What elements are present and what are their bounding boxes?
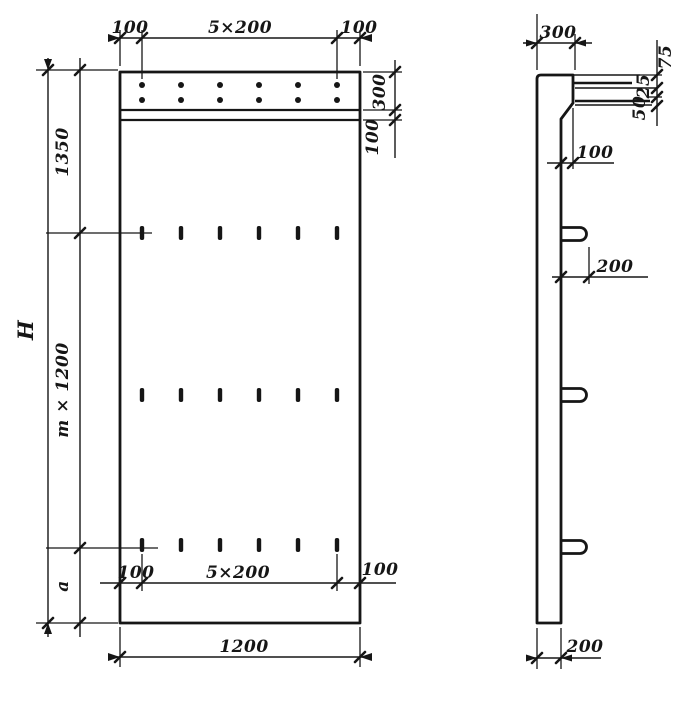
slot-mark [179,538,183,552]
dim-label-band-height: 300 [370,74,390,111]
rebar-dot [334,82,340,88]
slot-mark [179,226,183,240]
lifting-hook [561,541,587,554]
rebar-dots [139,82,340,103]
slot-mark [296,226,300,240]
dim-label-width: 1200 [219,637,268,657]
rebar-dot [139,82,145,88]
slot-mark [179,388,183,402]
dim-label-chain-75: 75 [656,45,676,70]
slot-mark [296,388,300,402]
dim-label-height: H [13,319,38,341]
slot-mark [257,538,261,552]
dim-label-hook: 200 [596,257,634,277]
rebar-dot [178,82,184,88]
slot-mark [218,226,222,240]
rebar-dot [217,97,223,103]
slot-marks [140,226,339,552]
dimension-labels: 100 5×200 100 300 100 1350 m × 1200 a H … [13,18,676,657]
slot-mark [218,538,222,552]
rebar-dot [295,82,301,88]
rebar-dot [217,82,223,88]
dim-label-top-span: 5×200 [208,18,272,38]
front-view [120,72,360,623]
slot-mark [296,538,300,552]
dim-label-top-right: 100 [341,18,378,38]
dim-label-bottom-left: 100 [118,563,155,583]
dim-label-left-middle: m × 1200 [53,342,73,437]
dim-label-left-bottom: a [53,580,73,592]
drawing-sheet: 100 5×200 100 300 100 1350 m × 1200 a H … [0,0,700,700]
slot-mark [140,538,144,552]
dim-label-bottom-right: 100 [362,560,399,580]
dim-label-side-top: 300 [540,23,577,43]
slot-mark [257,388,261,402]
slot-mark [335,388,339,402]
dim-label-strip-height: 100 [363,119,383,156]
lifting-hook [561,228,587,241]
rebar-dot [295,97,301,103]
front-panel-outline [120,72,360,623]
rebar-dot [139,97,145,103]
technical-drawing-canvas: 100 5×200 100 300 100 1350 m × 1200 a H … [0,0,700,700]
slot-mark [335,538,339,552]
rebar-dot [256,97,262,103]
slot-mark [335,226,339,240]
rebar-dot [256,82,262,88]
lifting-hook [561,389,587,402]
dim-label-bottom-span: 5×200 [206,563,270,583]
dim-label-top-left: 100 [112,18,149,38]
rebar-dot [334,97,340,103]
dim-label-chain-50: 50 [630,96,650,121]
slot-mark [140,388,144,402]
dim-label-left-top: 1350 [53,127,73,176]
dim-label-ledge: 100 [577,143,614,163]
rebar-dot [178,97,184,103]
dim-label-chain-25: 25 [634,74,654,100]
slot-mark [257,226,261,240]
dim-label-thickness: 200 [566,637,604,657]
slot-mark [218,388,222,402]
